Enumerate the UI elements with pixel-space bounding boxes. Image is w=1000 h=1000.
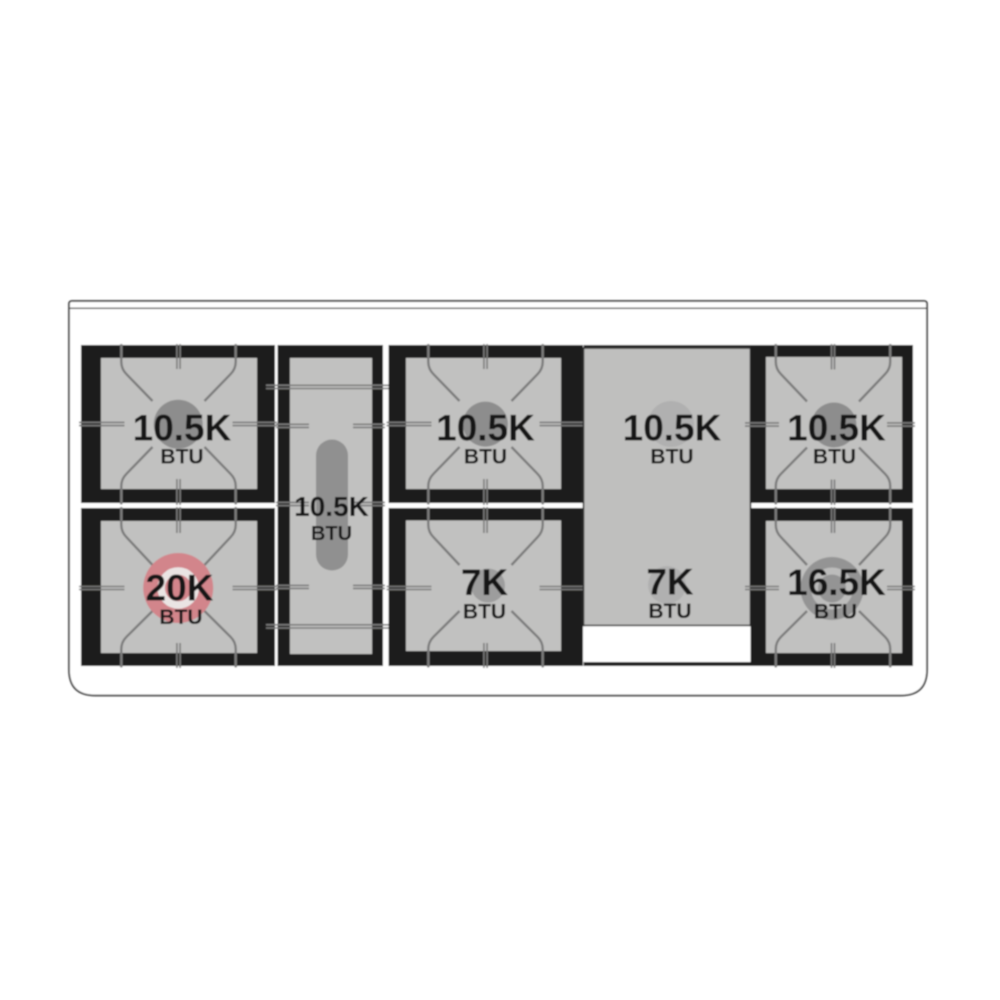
svg-text:10.5K: 10.5K — [623, 408, 722, 449]
svg-text:10.5K: 10.5K — [294, 491, 369, 522]
svg-text:BTU: BTU — [814, 601, 857, 624]
svg-text:7K: 7K — [461, 562, 509, 603]
svg-text:BTU: BTU — [159, 606, 202, 629]
svg-text:7K: 7K — [646, 562, 694, 603]
svg-text:10.5K: 10.5K — [436, 408, 535, 449]
svg-text:16.5K: 16.5K — [787, 562, 886, 603]
svg-text:10.5K: 10.5K — [787, 408, 886, 449]
svg-text:BTU: BTU — [463, 601, 506, 624]
svg-text:BTU: BTU — [813, 446, 856, 469]
svg-text:BTU: BTU — [160, 446, 203, 469]
svg-text:BTU: BTU — [311, 523, 352, 545]
svg-text:BTU: BTU — [648, 600, 691, 623]
svg-text:BTU: BTU — [464, 446, 507, 469]
svg-text:BTU: BTU — [650, 446, 693, 469]
svg-text:20K: 20K — [146, 568, 214, 609]
svg-text:10.5K: 10.5K — [133, 408, 232, 449]
